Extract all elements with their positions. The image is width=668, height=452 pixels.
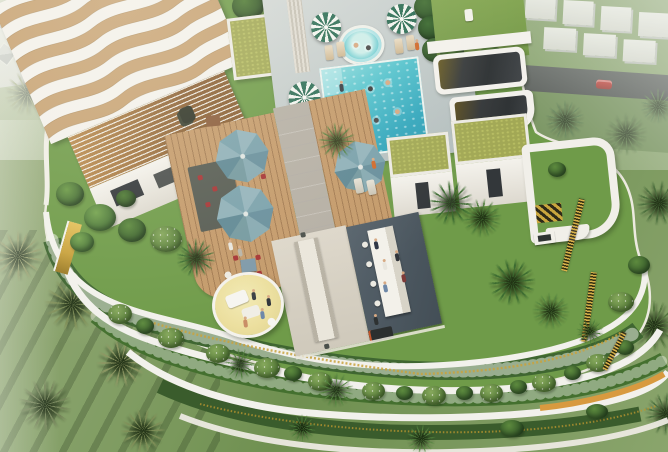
- sun-lounger: [336, 41, 346, 57]
- garden-bush: [422, 386, 446, 405]
- aerial-render: [0, 0, 668, 452]
- palm-tree: [576, 318, 604, 346]
- person: [339, 84, 344, 92]
- garden-bush: [456, 386, 473, 400]
- garden-bush: [56, 182, 84, 206]
- end-chair: [300, 232, 306, 238]
- person: [251, 292, 256, 300]
- gold-chevron-deck: [535, 203, 563, 224]
- garden-bush: [254, 358, 280, 378]
- garden-bush: [158, 328, 184, 348]
- garden-bush: [70, 232, 94, 252]
- ottoman: [197, 175, 203, 181]
- garden-bush: [510, 380, 527, 394]
- palm-tree: [288, 414, 316, 442]
- square-table-blue: [240, 258, 257, 273]
- daybed: [224, 289, 249, 309]
- garden-bush: [548, 162, 566, 177]
- person: [415, 42, 420, 50]
- swimmer: [395, 109, 401, 115]
- garden-bush: [564, 366, 581, 380]
- ottoman: [212, 186, 218, 192]
- garden-bush: [362, 382, 385, 400]
- garden-bush: [586, 404, 608, 419]
- cube-sedum-roof: [386, 132, 452, 178]
- garden-bush: [84, 204, 116, 231]
- bather: [353, 42, 359, 48]
- person: [266, 298, 271, 306]
- picnic-table: [206, 115, 221, 127]
- garden-bush: [284, 366, 302, 381]
- swimmer: [385, 80, 391, 86]
- person: [260, 311, 265, 319]
- glazed-roof: [438, 51, 523, 89]
- garden-bush: [532, 374, 556, 392]
- sun-lounger: [324, 45, 334, 61]
- round-side-table: [267, 317, 276, 326]
- garden-bush: [480, 384, 503, 402]
- garden-bush: [116, 190, 136, 207]
- planter-slot: [538, 234, 552, 242]
- cube-door: [486, 168, 503, 197]
- garden-bush: [608, 292, 634, 312]
- garden-bush: [628, 256, 650, 274]
- garden-bush: [118, 218, 146, 242]
- garden-bush: [136, 318, 154, 334]
- ottoman: [205, 202, 211, 208]
- skylight-structure: [432, 46, 528, 95]
- garden-bush: [396, 386, 413, 400]
- bather: [366, 45, 372, 51]
- white-lounge-chair: [464, 9, 473, 22]
- garden-bush: [108, 304, 132, 324]
- sun-lounger: [394, 38, 404, 54]
- person: [243, 319, 248, 327]
- garden-bush: [500, 420, 524, 437]
